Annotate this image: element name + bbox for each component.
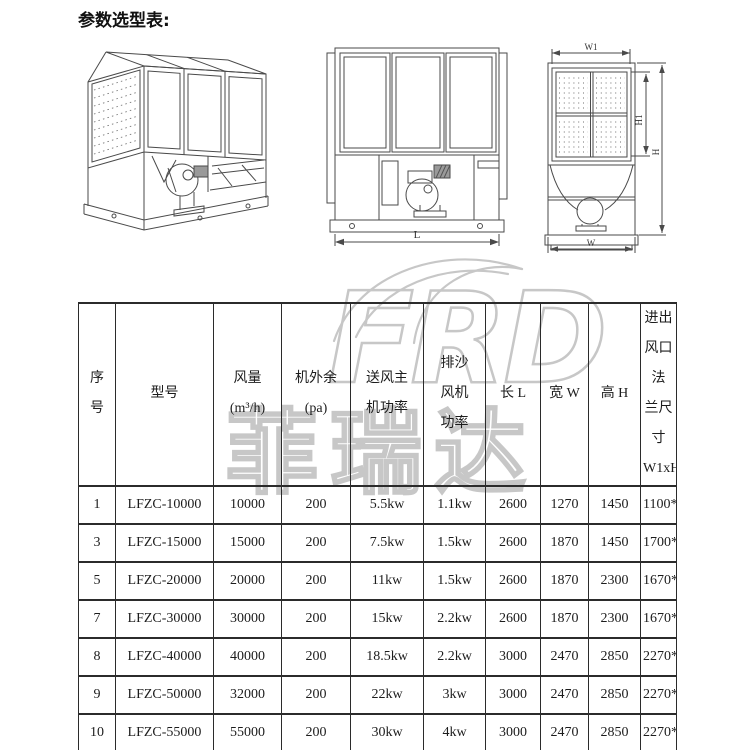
table-cell: 1870: [541, 524, 589, 562]
table-cell: 8: [79, 638, 116, 676]
table-cell: 30000: [214, 600, 282, 638]
table-cell: 2.2kw: [424, 638, 486, 676]
table-cell: 2600: [486, 524, 541, 562]
table-cell: 2470: [541, 714, 589, 750]
table-cell: LFZC-15000: [116, 524, 214, 562]
table-cell: 7: [79, 600, 116, 638]
column-header: 送风主 机功率: [351, 303, 424, 486]
table-cell: 2600: [486, 600, 541, 638]
header-row: 序 号型号风量 (m³/h)机外余 (pa)送风主 机功率排沙 风机 功率长 L…: [79, 303, 677, 486]
table-cell: 1270: [541, 486, 589, 524]
table-cell: 22kw: [351, 676, 424, 714]
table-cell: LFZC-55000: [116, 714, 214, 750]
table-cell: 200: [282, 486, 351, 524]
dim-label-h1: H1: [634, 115, 644, 126]
column-header: 风量 (m³/h): [214, 303, 282, 486]
table-cell: 200: [282, 524, 351, 562]
column-header: 型号: [116, 303, 214, 486]
table-row: 1LFZC-10000100002005.5kw1.1kw26001270145…: [79, 486, 677, 524]
table-cell: 2470: [541, 676, 589, 714]
table-cell: 2300: [589, 600, 641, 638]
column-header: 进出风口法 兰尺寸 W1xH1: [641, 303, 677, 486]
table-cell: 30kw: [351, 714, 424, 750]
table-header: 序 号型号风量 (m³/h)机外余 (pa)送风主 机功率排沙 风机 功率长 L…: [79, 303, 677, 486]
table-cell: 200: [282, 638, 351, 676]
table-row: 5LFZC-200002000020011kw1.5kw260018702300…: [79, 562, 677, 600]
table-cell: 200: [282, 600, 351, 638]
table-cell: 2600: [486, 486, 541, 524]
table-cell: 1.5kw: [424, 524, 486, 562]
column-header: 机外余 (pa): [282, 303, 351, 486]
table-cell: 5: [79, 562, 116, 600]
column-header: 长 L: [486, 303, 541, 486]
table-row: 10LFZC-550005500020030kw4kw3000247028502…: [79, 714, 677, 750]
table-cell: 1450: [589, 486, 641, 524]
dim-label-w1: W1: [585, 42, 598, 52]
table-cell: 11kw: [351, 562, 424, 600]
table-cell: 1870: [541, 562, 589, 600]
table-cell: 200: [282, 562, 351, 600]
table-cell: 32000: [214, 676, 282, 714]
table-cell: 20000: [214, 562, 282, 600]
table-cell: 10000: [214, 486, 282, 524]
table-cell: LFZC-30000: [116, 600, 214, 638]
table-cell: LFZC-20000: [116, 562, 214, 600]
table-cell: 55000: [214, 714, 282, 750]
table-cell: 10: [79, 714, 116, 750]
table-cell: 2600: [486, 562, 541, 600]
table-cell: 2850: [589, 676, 641, 714]
table-cell: LFZC-40000: [116, 638, 214, 676]
table-cell: 1670*1300: [641, 562, 677, 600]
table-cell: 3: [79, 524, 116, 562]
table-cell: 1.1kw: [424, 486, 486, 524]
table-cell: 18.5kw: [351, 638, 424, 676]
table-cell: 1670*1300: [641, 600, 677, 638]
table-cell: LFZC-50000: [116, 676, 214, 714]
table-row: 3LFZC-15000150002007.5kw1.5kw26001870145…: [79, 524, 677, 562]
front-view-drawing: L: [322, 45, 512, 250]
table-cell: 3000: [486, 638, 541, 676]
table-cell: 200: [282, 676, 351, 714]
dim-label-length: L: [414, 229, 421, 241]
table-cell: LFZC-10000: [116, 486, 214, 524]
table-cell: 2850: [589, 638, 641, 676]
table-row: 8LFZC-400004000020018.5kw2.2kw3000247028…: [79, 638, 677, 676]
dim-label-w: W: [587, 238, 596, 248]
table-cell: 1100*700: [641, 486, 677, 524]
column-header: 序 号: [79, 303, 116, 486]
table-cell: 1870: [541, 600, 589, 638]
table-cell: 9: [79, 676, 116, 714]
table-cell: 40000: [214, 638, 282, 676]
table-cell: 3000: [486, 676, 541, 714]
column-header: 排沙 风机 功率: [424, 303, 486, 486]
table-cell: 200: [282, 714, 351, 750]
document-page: 参数选型表:: [0, 0, 750, 750]
table-cell: 15000: [214, 524, 282, 562]
table-cell: 2270*1700: [641, 676, 677, 714]
side-view-drawing: W1 H1 H W: [538, 40, 672, 255]
table-cell: 2300: [589, 562, 641, 600]
table-cell: 1.5kw: [424, 562, 486, 600]
table-cell: 3000: [486, 714, 541, 750]
page-title: 参数选型表:: [78, 6, 170, 31]
table-row: 9LFZC-500003200020022kw3kw30002470285022…: [79, 676, 677, 714]
table-cell: 5.5kw: [351, 486, 424, 524]
table-cell: 1: [79, 486, 116, 524]
table-cell: 15kw: [351, 600, 424, 638]
column-header: 宽 W: [541, 303, 589, 486]
isometric-view-drawing: [80, 48, 275, 240]
parameter-table: 序 号型号风量 (m³/h)机外余 (pa)送风主 机功率排沙 风机 功率长 L…: [78, 302, 677, 750]
table-row: 7LFZC-300003000020015kw2.2kw260018702300…: [79, 600, 677, 638]
table-cell: 7.5kw: [351, 524, 424, 562]
table-cell: 2.2kw: [424, 600, 486, 638]
table-cell: 2470: [541, 638, 589, 676]
table-cell: 1700*700: [641, 524, 677, 562]
column-header: 高 H: [589, 303, 641, 486]
table-cell: 3kw: [424, 676, 486, 714]
dim-label-h: H: [651, 148, 661, 155]
table-cell: 1450: [589, 524, 641, 562]
table-cell: 4kw: [424, 714, 486, 750]
table-body: 1LFZC-10000100002005.5kw1.1kw26001270145…: [79, 486, 677, 750]
table-cell: 2270*1700: [641, 638, 677, 676]
table-cell: 2270*1700: [641, 714, 677, 750]
table-cell: 2850: [589, 714, 641, 750]
